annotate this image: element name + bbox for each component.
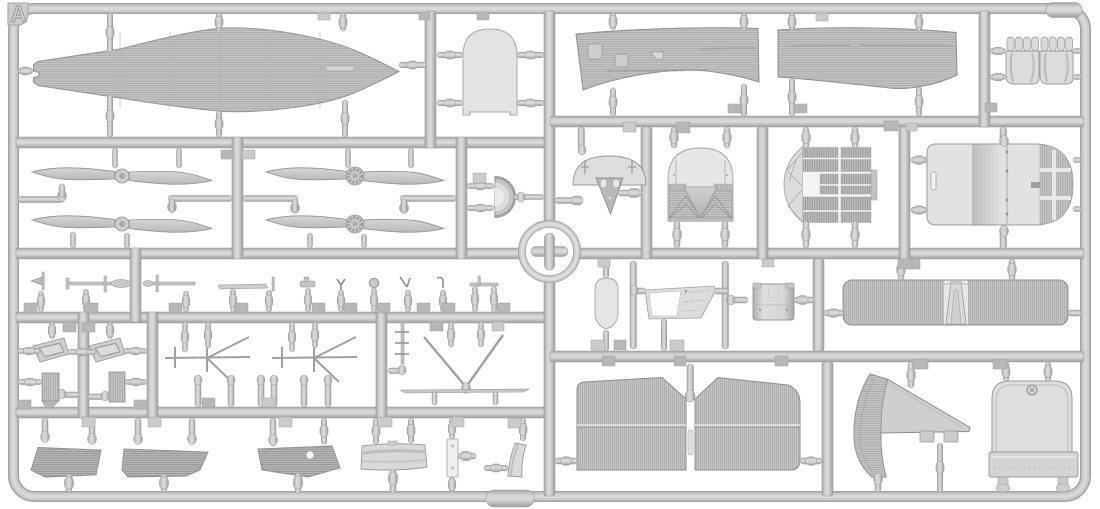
svg-text:A: A [10, 1, 27, 27]
